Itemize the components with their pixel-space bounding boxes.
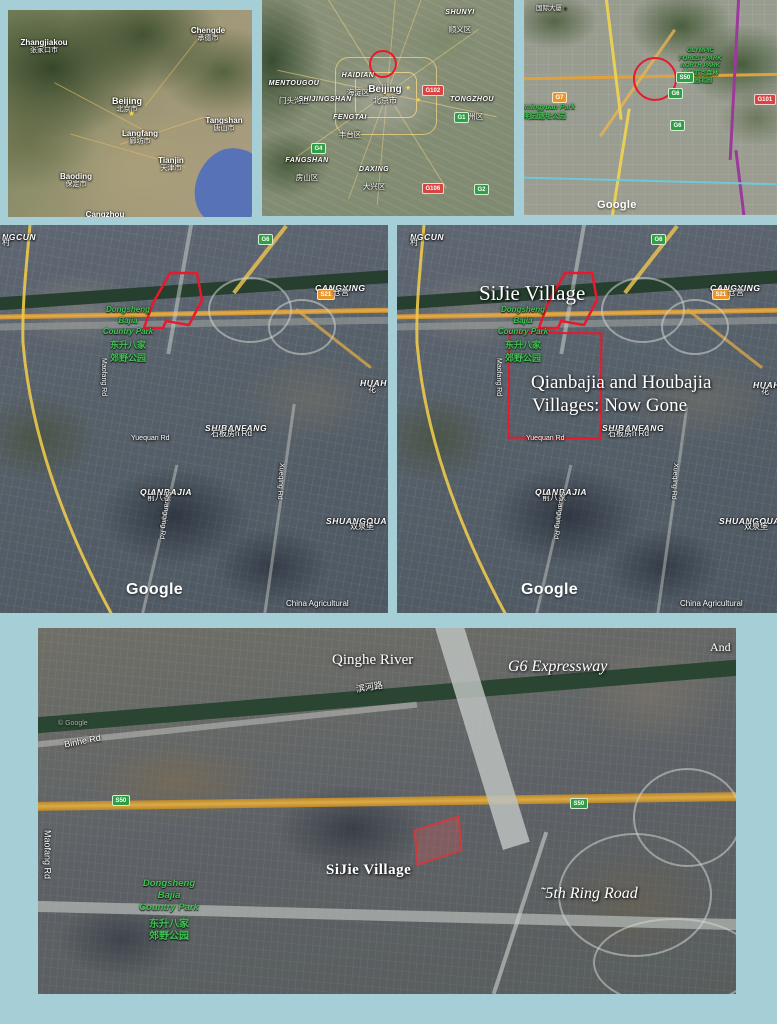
road-label: Yuequan Rd xyxy=(526,435,565,443)
annotation-g6-expressway: G6 Expressway xyxy=(508,658,607,676)
park-label: Bajia xyxy=(158,890,181,901)
route-badge: G1 xyxy=(454,112,469,123)
interchange-loop xyxy=(633,768,736,867)
park-label: Country Park xyxy=(139,902,199,913)
park-label: Bajia xyxy=(118,316,137,325)
annotation-cutoff-label: And xyxy=(710,640,731,655)
s50-road-orange xyxy=(38,792,736,811)
star-marker-icon: ★ xyxy=(128,110,135,118)
district-label-cn: 石板房n Rd xyxy=(608,429,649,438)
red-buildings-sijie xyxy=(414,815,462,866)
district-label-cn: 花 xyxy=(761,387,769,396)
park-label: Country Park xyxy=(498,327,548,336)
park-label: Dongsheng xyxy=(106,305,150,314)
city-label: Zhangjiakou张家口市 xyxy=(20,38,67,55)
city-label: Cangzhou xyxy=(86,210,125,217)
road-label: Yuequan Rd xyxy=(131,435,170,443)
road-label-maofang: Maofang Rd xyxy=(99,358,107,396)
district-label-cn: 村 xyxy=(410,238,418,247)
copyright-watermark: © Google xyxy=(58,720,88,728)
park-label: Dongsheng xyxy=(143,878,195,889)
map-figure-composite: Zhangjiakou张家口市 Chengde承德市 Beijing北京市 ★ … xyxy=(0,0,777,1024)
district-label-cn: 仓营 xyxy=(333,288,349,297)
park-label: Dongsheng xyxy=(501,305,545,314)
road-label-maofang: Maofang Rd xyxy=(42,830,52,879)
route-badge: G4 xyxy=(311,143,326,154)
annotation-sijie-village: SiJie Village xyxy=(326,862,411,879)
annotation-sijie-village: SiJie Village xyxy=(479,281,585,306)
district-label-cn: 村 xyxy=(2,238,10,247)
road-label: Binhe Rd xyxy=(63,733,101,750)
attribution-label: China Agricultural xyxy=(286,599,349,608)
overview-map-north-beijing: 国际大厦 ● OLYMPIC FOREST PARK NORTH PARK 奥林… xyxy=(524,0,777,215)
city-label: Chengde承德市 xyxy=(191,26,225,43)
district-label: SHIJINGSHAN xyxy=(298,88,351,106)
district-label: SHUNYI顺义区 xyxy=(445,1,474,38)
park-label-cn: 东升八家 xyxy=(505,338,541,351)
annotation-villages-gone-line1: Qianbajia and Houbajia xyxy=(531,372,711,394)
poi-label: 国际大厦 ● xyxy=(536,5,567,13)
route-badge: G6 xyxy=(670,120,685,131)
route-badge: S50 xyxy=(676,72,694,83)
district-label-cn: 仓营 xyxy=(728,288,744,297)
park-label-cn: 郊野公园 xyxy=(110,351,146,364)
route-badge: G7 xyxy=(552,92,567,103)
road-label-maofang: Maofang Rd xyxy=(494,358,502,396)
satellite-map-annotated: NGCUN 村 G6 CANGYING S21 仓营 Dongsheng Baj… xyxy=(397,225,777,613)
route-badge: G6 xyxy=(668,88,683,99)
star-marker-icon: ★ xyxy=(405,85,411,92)
poi-dot-icon: ● xyxy=(564,6,567,12)
route-badge: G101 xyxy=(754,94,776,105)
detail-map-sijie-village: Qinghe River G6 Expressway And 滨河路 Binhe… xyxy=(38,628,736,994)
route-badge: S50 xyxy=(570,798,588,809)
route-badge: G2 xyxy=(474,184,489,195)
satellite-map-unannotated: NGCUN 村 G6 CANGYING S21 仓营 Dongsheng Baj… xyxy=(0,225,388,613)
route-badge: G102 xyxy=(422,85,444,96)
red-polygon-sijie xyxy=(144,273,202,328)
city-label: Beijing北京市 xyxy=(368,84,401,105)
yuanmingyuan-park-label: Yuanmingyuan Park 圆明园遗址公园 xyxy=(524,103,575,121)
district-label-cn: 花 xyxy=(368,385,376,394)
qinghe-river xyxy=(38,658,736,735)
district-label-cn: 双泉堡 xyxy=(744,522,768,531)
city-label: Beijing北京市 xyxy=(112,96,142,114)
star-marker-icon: ★ xyxy=(415,97,421,104)
park-label: Country Park xyxy=(103,327,153,336)
google-watermark: Google xyxy=(521,581,578,599)
city-label: Tangshan唐山市 xyxy=(205,116,242,133)
route-badge: G6 xyxy=(651,234,666,245)
district-label-cn: 双泉堡 xyxy=(350,522,374,531)
attribution-label: China Agricultural xyxy=(680,599,743,608)
district-label: FANGSHAN房山区 xyxy=(285,149,328,186)
annotation-villages-gone-line2: Villages: Now Gone xyxy=(532,395,687,417)
google-watermark: Google xyxy=(597,199,637,211)
route-badge: G6 xyxy=(258,234,273,245)
park-label-cn: 郊野公园 xyxy=(505,351,541,364)
district-label: FENGTAI丰台区 xyxy=(333,106,367,143)
google-watermark: Google xyxy=(126,581,183,599)
overview-map-region: Zhangjiakou张家口市 Chengde承德市 Beijing北京市 ★ … xyxy=(8,10,252,217)
route-badge: G106 xyxy=(422,183,444,194)
park-label: Bajia xyxy=(513,316,532,325)
city-label: Baoding保定市 xyxy=(60,172,92,189)
city-label: Tianjin天津市 xyxy=(158,156,184,173)
overview-map-beijing: SHUNYI顺义区 MENTOUGOU门头沟区 HAIDIAN海淀区 SHIJI… xyxy=(262,0,514,216)
route-badge: S50 xyxy=(112,795,130,806)
district-label: DAXING大兴区 xyxy=(359,158,389,195)
district-label-cn: 石板房n Rd xyxy=(211,429,252,438)
city-label: Langfang廊坊市 xyxy=(122,129,158,146)
annotation-qinghe-river: Qinghe River xyxy=(332,652,413,669)
park-label-cn: 郊野公园 xyxy=(149,927,189,942)
annotation-5th-ring-road: ˜5th Ring Road xyxy=(540,885,638,903)
park-label-cn: 东升八家 xyxy=(110,338,146,351)
